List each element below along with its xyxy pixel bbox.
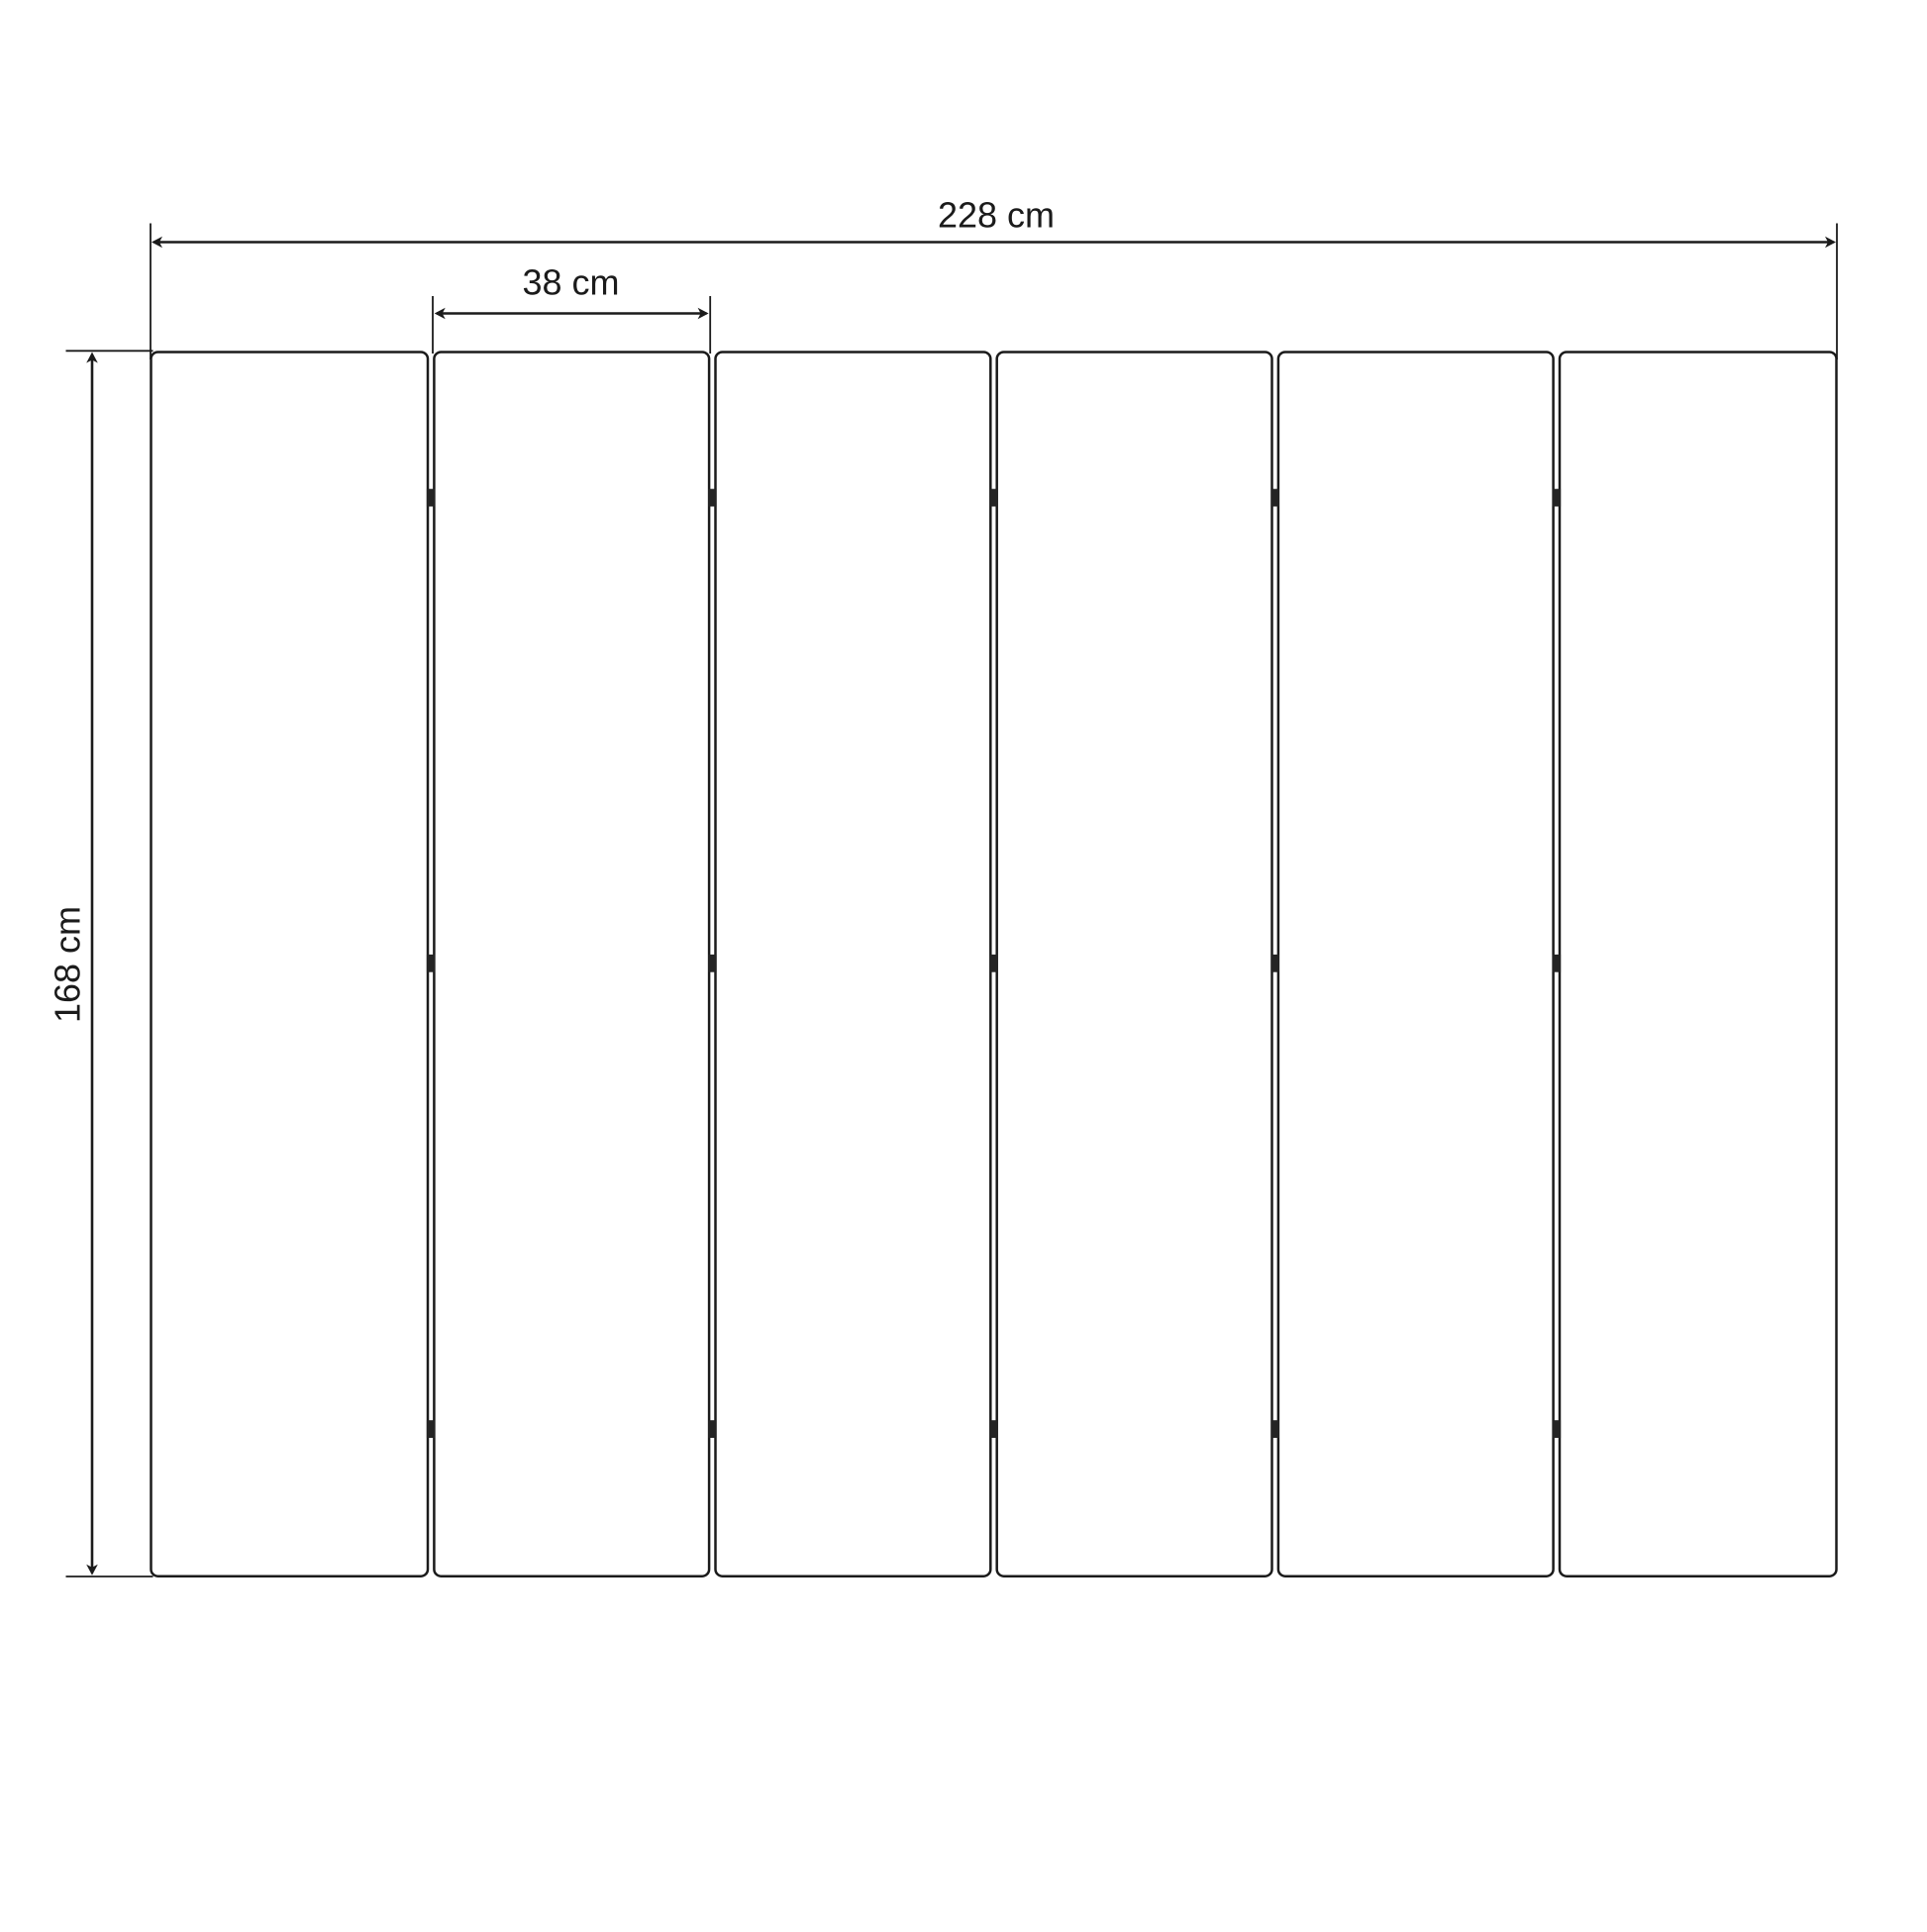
svg-text:38 cm: 38 cm (522, 261, 619, 302)
svg-text:228 cm: 228 cm (938, 195, 1055, 236)
svg-text:168 cm: 168 cm (48, 906, 88, 1023)
